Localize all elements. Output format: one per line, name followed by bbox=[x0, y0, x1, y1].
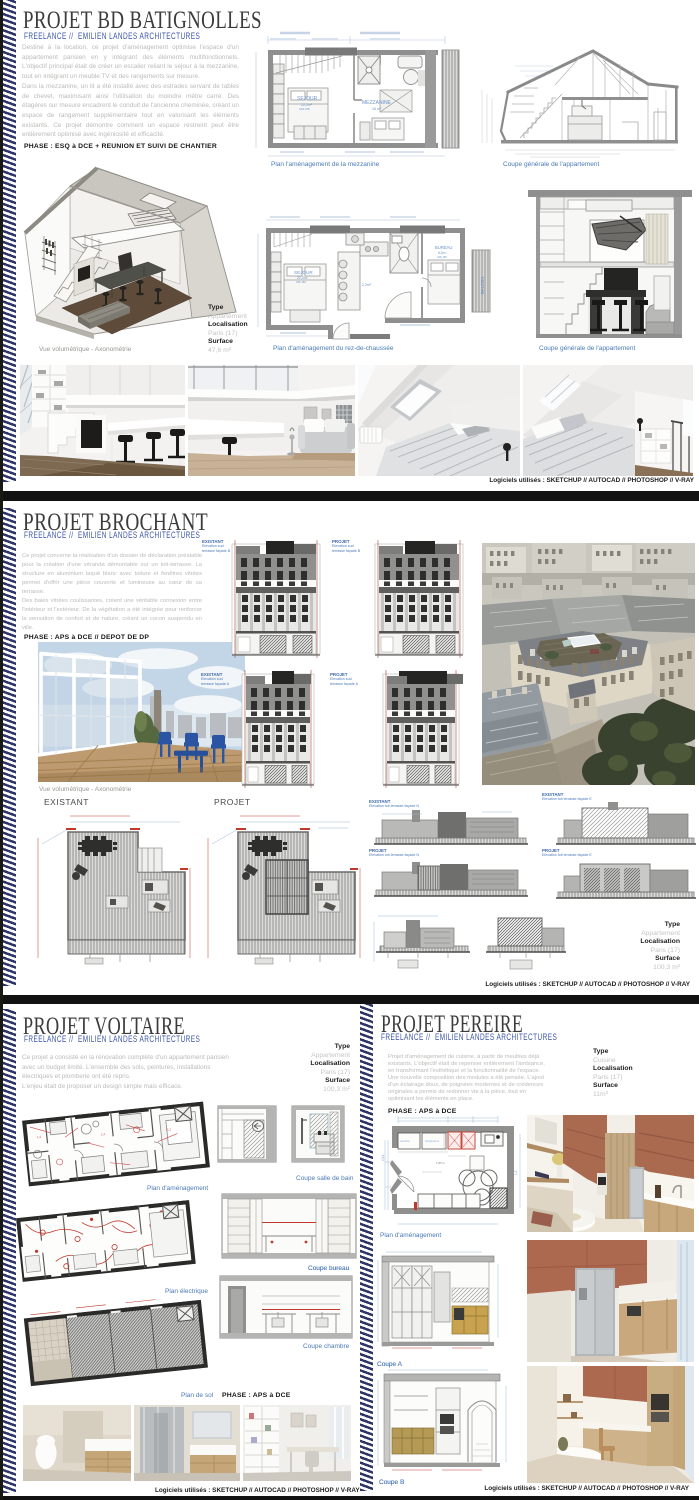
svg-text:BALCON: BALCON bbox=[480, 277, 485, 294]
svg-text:BUREAU: BUREAU bbox=[435, 245, 452, 250]
svg-text:machine: machine bbox=[400, 1139, 410, 1143]
svg-text:GSF 158: GSF 158 bbox=[296, 281, 306, 284]
svg-text:1.2: 1.2 bbox=[37, 1135, 42, 1139]
svg-text:SEJOUR: SEJOUR bbox=[297, 96, 318, 102]
svg-text:8,2m²: 8,2m² bbox=[438, 251, 446, 255]
svg-text:22,2m²: 22,2m² bbox=[297, 276, 308, 280]
svg-text:2,41: 2,41 bbox=[381, 1155, 385, 1161]
svg-text:1,85 m: 1,85 m bbox=[436, 1161, 446, 1165]
svg-text:22,2m²: 22,2m² bbox=[301, 103, 313, 107]
svg-text:3.1: 3.1 bbox=[167, 1127, 172, 1131]
svg-text:16 m²: 16 m² bbox=[372, 107, 382, 111]
svg-text:2.4: 2.4 bbox=[101, 1132, 106, 1136]
svg-text:MEZZANINE: MEZZANINE bbox=[362, 100, 392, 106]
svg-text:SEJOUR: SEJOUR bbox=[294, 270, 313, 275]
svg-text:1,2: 1,2 bbox=[514, 1170, 518, 1175]
svg-text:GSF 158: GSF 158 bbox=[299, 107, 310, 111]
svg-text:GSF 158: GSF 158 bbox=[437, 256, 447, 259]
svg-text:réfrigérateur: réfrigérateur bbox=[425, 1139, 439, 1143]
svg-text:2,2m²: 2,2m² bbox=[362, 283, 372, 287]
